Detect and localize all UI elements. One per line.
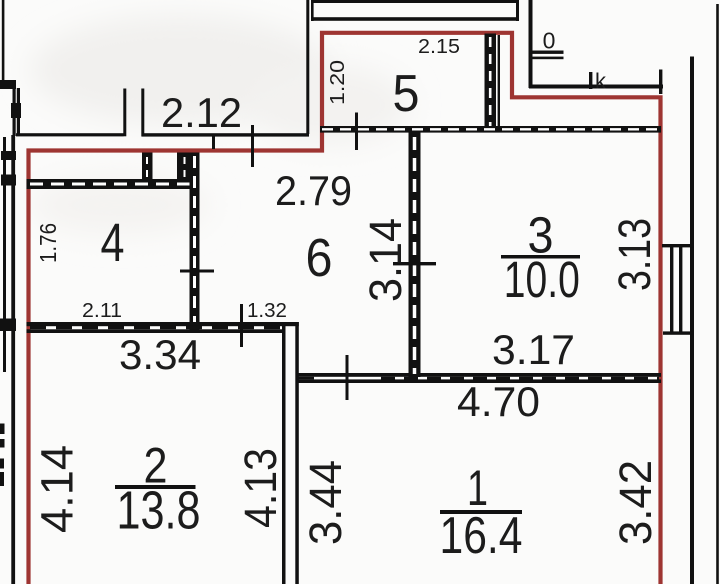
svg-text:1.32: 1.32	[247, 300, 287, 322]
svg-text:3.42: 3.42	[610, 460, 661, 545]
svg-text:4.13: 4.13	[235, 448, 286, 528]
svg-text:3.17: 3.17	[492, 326, 575, 373]
svg-text:16.4: 16.4	[440, 507, 523, 565]
svg-text:6: 6	[306, 228, 333, 288]
svg-text:3.44: 3.44	[300, 460, 351, 545]
svg-text:0: 0	[543, 28, 556, 54]
svg-text:5: 5	[393, 65, 420, 123]
svg-text:3.14: 3.14	[360, 218, 411, 302]
svg-text:1.20: 1.20	[327, 60, 349, 105]
svg-text:2.12: 2.12	[161, 89, 242, 136]
svg-text:2.15: 2.15	[418, 36, 460, 58]
svg-text:1.76: 1.76	[35, 223, 61, 263]
svg-text:4.70: 4.70	[457, 378, 540, 425]
svg-text:2.79: 2.79	[275, 167, 352, 214]
svg-text:13.8: 13.8	[117, 481, 201, 541]
svg-text:3.34: 3.34	[119, 331, 201, 378]
svg-text:3.13: 3.13	[609, 218, 660, 291]
svg-text:k: k	[595, 69, 607, 94]
svg-text:4.14: 4.14	[32, 445, 83, 533]
svg-text:10.0: 10.0	[504, 251, 580, 308]
svg-text:4: 4	[101, 213, 125, 273]
svg-text:2.11: 2.11	[82, 300, 122, 322]
